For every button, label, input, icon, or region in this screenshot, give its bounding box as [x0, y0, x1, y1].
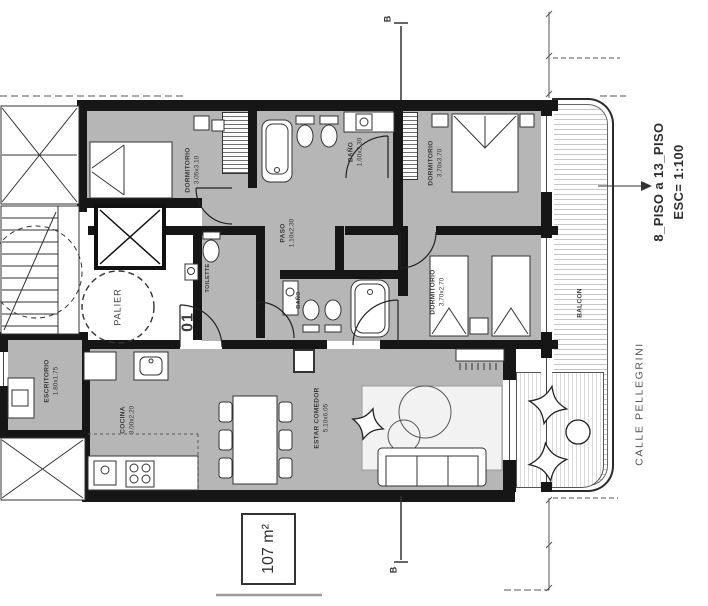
room-label-cocina: COCINA 3.00x2.20 — [119, 406, 138, 435]
unit-number-label: 01 — [176, 312, 199, 332]
room-label-toilette: TOILETTE — [205, 264, 213, 293]
section-marker-top: B — [381, 16, 394, 23]
stairs-lower — [1, 438, 85, 500]
room-label-dormitorio-3: DORMITORIO 3.70x2.70 — [429, 269, 448, 314]
street-label: CALLE PELLEGRINI — [632, 342, 647, 466]
vanity-bath-1 — [344, 112, 394, 132]
toilet-toilette — [185, 232, 220, 280]
room-label-estar-comedor: ESTAR COMEDOR 5.10x6.05 — [313, 387, 332, 448]
bed-bedroom-2 — [432, 114, 534, 192]
room-label-paso: PASO 1.10x2.30 — [279, 219, 298, 248]
elevator — [96, 206, 164, 268]
sofa-living — [378, 448, 486, 486]
terrace-table — [566, 420, 590, 444]
room-label-dormitorio-2: DORMITORIO 3.70x3.70 — [427, 140, 446, 185]
floor-plan: DORMITORIO 3.05x3.10 BAÑO 1.60x2.30 DORM… — [0, 0, 708, 606]
area-label: 107 m² — [260, 524, 278, 574]
room-label-balcon: BALCON — [575, 288, 584, 318]
kitchen-cabinets — [84, 352, 168, 380]
title-leader-arrow — [598, 181, 652, 191]
room-label-bano-1: BAÑO 1.60x2.30 — [347, 138, 366, 167]
terrace-armchairs — [525, 382, 590, 483]
room-label-bano-2: BAÑO — [296, 291, 304, 308]
room-label-dormitorio-1: DORMITORIO 3.05x3.10 — [184, 147, 203, 192]
bathtub-bath-2 — [351, 280, 389, 337]
kitchen-counter — [88, 456, 198, 490]
bathtub-bath-1 — [262, 120, 292, 182]
bed-bedroom-1 — [90, 116, 224, 198]
toilet-bath-1 — [296, 116, 314, 147]
desk-escritorio — [8, 378, 34, 418]
toilet-bath-2 — [303, 300, 319, 332]
bidet-bath-1 — [320, 116, 338, 147]
structural-column — [294, 350, 314, 372]
stairwell-mid — [0, 206, 82, 334]
linework-overlay — [0, 0, 708, 606]
room-label-escritorio: ESCRITORIO 1.80x1.75 — [43, 359, 62, 402]
plan-title: 8_PISO a 13_PISO ESC= 1:100 — [649, 122, 689, 241]
dresser-bedroom-3 — [456, 349, 504, 370]
palier-label: PALIER — [111, 288, 124, 325]
area-box: 107 m² — [241, 513, 296, 585]
bidet-bath-2 — [325, 300, 341, 332]
section-marker-bottom: B — [387, 567, 400, 574]
stairs-upper — [1, 106, 79, 204]
dining-table — [219, 396, 292, 484]
